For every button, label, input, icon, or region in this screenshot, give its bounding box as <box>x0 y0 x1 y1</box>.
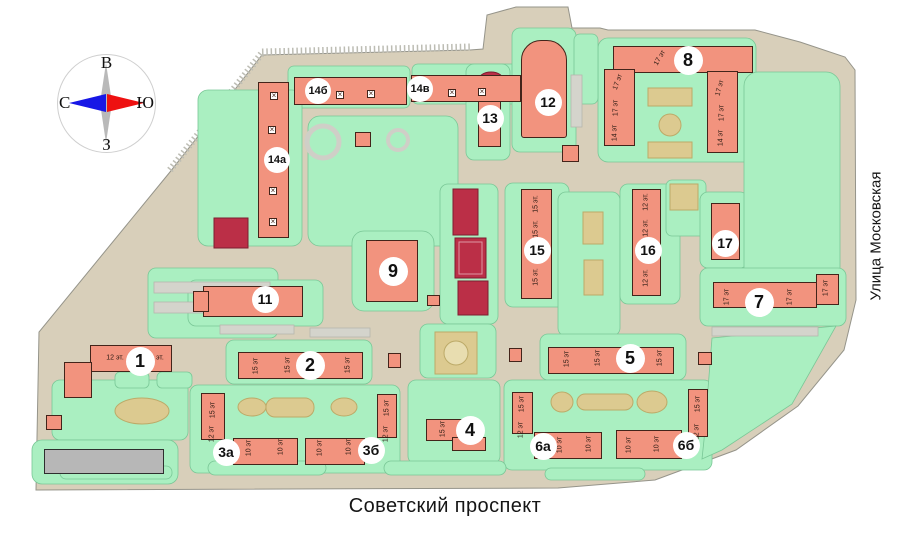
floor-count-label: 12 эт. <box>643 193 650 211</box>
floor-count-label: 10 эт <box>557 437 564 453</box>
existing-building-footprint <box>44 449 164 474</box>
stairwell-mark-icon: × <box>269 187 277 195</box>
building-6а-marker[interactable]: 6а <box>530 433 557 460</box>
building-14а-marker[interactable]: 14а <box>264 147 290 173</box>
floor-count-label: 10 эт <box>586 436 593 452</box>
compass-north-arrow-icon <box>69 94 106 112</box>
compass-point-right: Ю <box>137 93 154 113</box>
floor-count-label: 15 эт. <box>533 220 540 238</box>
stairwell-mark-icon: × <box>269 218 277 226</box>
service-building-footprint <box>698 352 712 365</box>
floor-count-label: 15 эт <box>384 400 391 416</box>
floor-count-label: 12 эт <box>383 426 390 442</box>
compass-point-bottom: З <box>102 135 111 155</box>
floor-count-label: 15 эт <box>210 402 217 418</box>
service-building-footprint <box>509 348 522 362</box>
building-1-footprint <box>64 362 92 398</box>
floor-count-label: 17 эт <box>823 280 830 296</box>
building-14б-marker[interactable]: 14б <box>305 78 331 104</box>
floor-count-label: 15 эт <box>253 358 260 374</box>
floor-count-label: 10 эт <box>278 439 285 455</box>
floor-count-label: 10 эт <box>654 436 661 452</box>
building-17-marker[interactable]: 17 <box>712 230 739 257</box>
building-2-marker[interactable]: 2 <box>296 351 325 380</box>
building-3б-footprint <box>305 438 365 465</box>
floor-count-label: 12 эт. <box>106 355 124 362</box>
stairwell-mark-icon: × <box>478 88 486 96</box>
floor-count-label: 17 эт <box>724 289 731 305</box>
floor-count-label: 15 эт <box>564 351 571 367</box>
building-3а-marker[interactable]: 3а <box>213 439 240 466</box>
compass-point-left: С <box>59 93 70 113</box>
building-14в-marker[interactable]: 14в <box>407 76 433 102</box>
floor-count-label: 12 эт <box>209 426 216 442</box>
floor-count-label: 10 эт <box>626 437 633 453</box>
floor-count-label: 17 эт <box>719 105 726 121</box>
street-label-sovetsky-prospekt: Советский проспект <box>0 495 890 518</box>
stairwell-mark-icon: × <box>336 91 344 99</box>
building-11-footprint <box>193 291 209 312</box>
stairwell-mark-icon: × <box>448 89 456 97</box>
building-13-marker[interactable]: 13 <box>477 105 504 132</box>
floor-count-label: 12 эт. <box>643 269 650 287</box>
service-building-footprint <box>355 132 371 147</box>
stairwell-mark-icon: × <box>268 126 276 134</box>
building-9-marker[interactable]: 9 <box>379 257 408 286</box>
floor-count-label: 17 эт <box>787 289 794 305</box>
floor-count-label: 15 эт <box>519 396 526 412</box>
floor-count-label: 10 эт <box>246 440 253 456</box>
building-5-marker[interactable]: 5 <box>616 344 645 373</box>
compass-point-top: В <box>101 53 112 73</box>
floor-count-label: 15 эт <box>695 396 702 412</box>
floor-count-label: 10 эт <box>317 440 324 456</box>
compass-rose: В З С Ю <box>57 54 156 153</box>
floor-count-label: 12 эт <box>518 422 525 438</box>
building-4-marker[interactable]: 4 <box>456 416 485 445</box>
building-11-marker[interactable]: 11 <box>252 286 279 313</box>
building-12-marker[interactable]: 12 <box>535 89 562 116</box>
building-1-marker[interactable]: 1 <box>126 347 155 376</box>
building-3б-marker[interactable]: 3б <box>358 437 385 464</box>
service-building-footprint <box>562 145 579 162</box>
floor-count-label: 17 эт <box>613 100 620 116</box>
floor-count-label: 15 эт <box>595 350 602 366</box>
building-16-marker[interactable]: 16 <box>635 237 662 264</box>
floor-count-label: 15 эт <box>440 421 447 437</box>
building-8-marker[interactable]: 8 <box>674 46 703 75</box>
street-label-ulitsa-moskovskaya: Улица Московская <box>868 172 885 301</box>
stairwell-mark-icon: × <box>367 90 375 98</box>
floor-count-label: 15 эт. <box>533 268 540 286</box>
building-3а-footprint <box>233 438 298 465</box>
service-building-footprint <box>427 295 440 306</box>
floor-count-label: 15 эт <box>657 350 664 366</box>
site-plan-map: 12 эт.12 эт.115 эт15 эт15 эт215 эт12 эт1… <box>0 0 900 533</box>
floor-count-label: 15 эт <box>345 357 352 373</box>
building-6б-marker[interactable]: 6б <box>673 432 700 459</box>
floor-count-label: 12 эт. <box>643 219 650 237</box>
floor-count-label: 14 эт <box>612 125 619 141</box>
stairwell-mark-icon: × <box>270 92 278 100</box>
floor-count-label: 14 эт <box>718 130 725 146</box>
floor-count-label: 15 эт <box>285 357 292 373</box>
floor-count-label: 15 эт. <box>533 195 540 213</box>
building-7-marker[interactable]: 7 <box>745 288 774 317</box>
building-15-marker[interactable]: 15 <box>524 237 551 264</box>
service-building-footprint <box>46 415 62 430</box>
floor-count-label: 10 эт <box>346 439 353 455</box>
service-building-footprint <box>388 353 401 368</box>
